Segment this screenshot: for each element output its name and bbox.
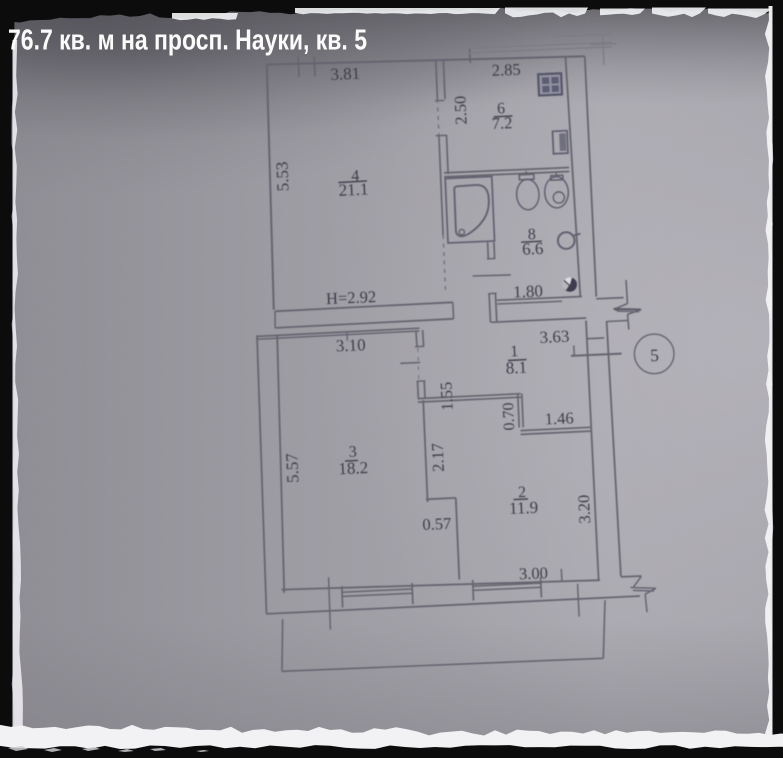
- svg-text:21.1: 21.1: [338, 180, 369, 200]
- svg-text:0.57: 0.57: [422, 514, 452, 534]
- svg-text:7.2: 7.2: [491, 113, 512, 133]
- svg-text:3.10: 3.10: [335, 335, 366, 355]
- svg-text:H=2.92: H=2.92: [326, 287, 377, 308]
- svg-text:2.85: 2.85: [491, 60, 521, 80]
- svg-text:2.50: 2.50: [450, 95, 470, 125]
- svg-text:0.70: 0.70: [500, 402, 518, 431]
- svg-text:8.1: 8.1: [505, 358, 527, 378]
- svg-text:3.00: 3.00: [519, 563, 549, 583]
- svg-text:2.17: 2.17: [428, 443, 448, 473]
- svg-text:5.53: 5.53: [272, 161, 292, 192]
- svg-text:1.46: 1.46: [544, 408, 574, 428]
- svg-text:3.20: 3.20: [574, 494, 594, 524]
- svg-text:1.55: 1.55: [436, 381, 456, 411]
- svg-text:5: 5: [650, 345, 660, 365]
- svg-text:5.57: 5.57: [282, 452, 302, 483]
- svg-text:6.6: 6.6: [522, 239, 544, 259]
- svg-text:76.7 кв. м на просп. Науки, кв: 76.7 кв. м на просп. Науки, кв. 5: [8, 25, 367, 57]
- svg-text:18.2: 18.2: [338, 458, 369, 478]
- svg-text:3.63: 3.63: [539, 327, 570, 347]
- svg-text:3.81: 3.81: [330, 64, 361, 84]
- svg-text:1.80: 1.80: [513, 281, 544, 301]
- svg-text:11.9: 11.9: [509, 498, 539, 518]
